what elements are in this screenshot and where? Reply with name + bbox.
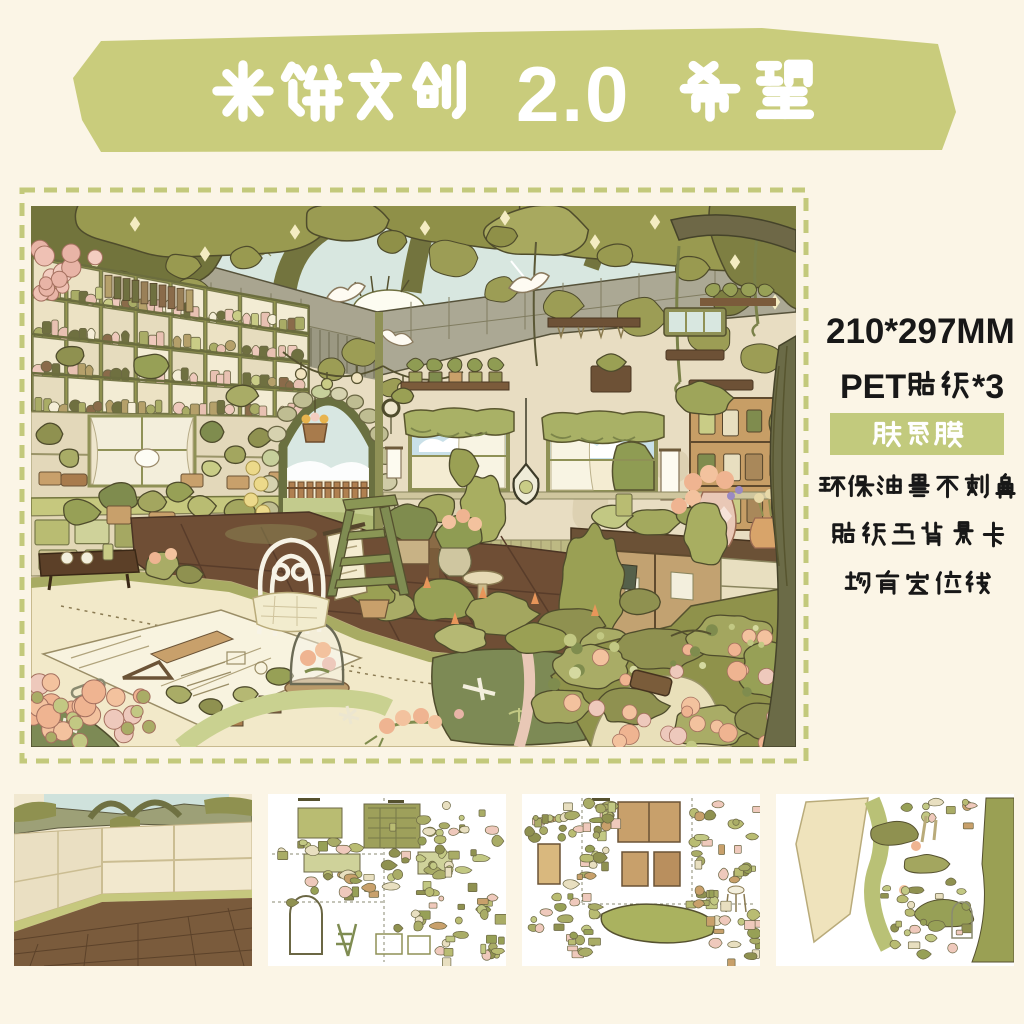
svg-text:*3: *3 [972, 368, 1004, 406]
svg-text:PET: PET [840, 368, 906, 406]
